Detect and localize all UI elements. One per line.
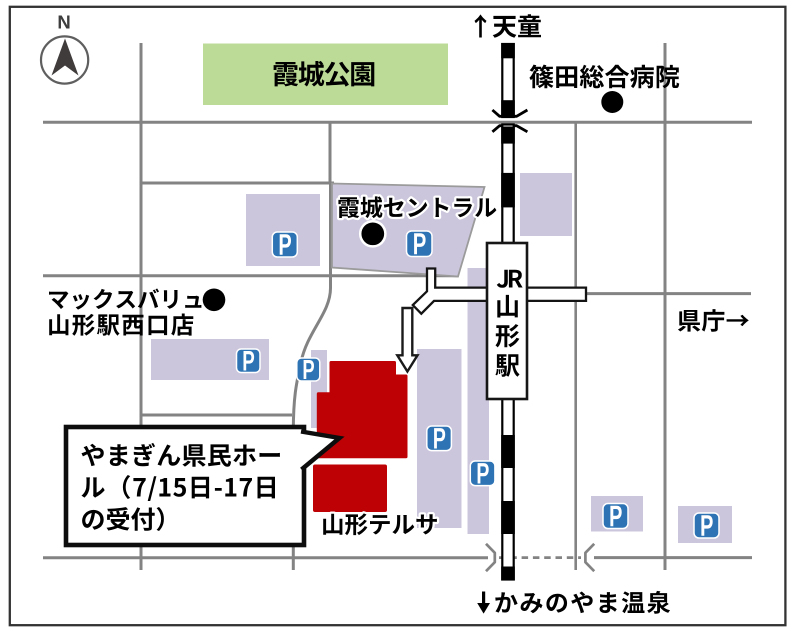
svg-text:N: N xyxy=(57,12,70,33)
